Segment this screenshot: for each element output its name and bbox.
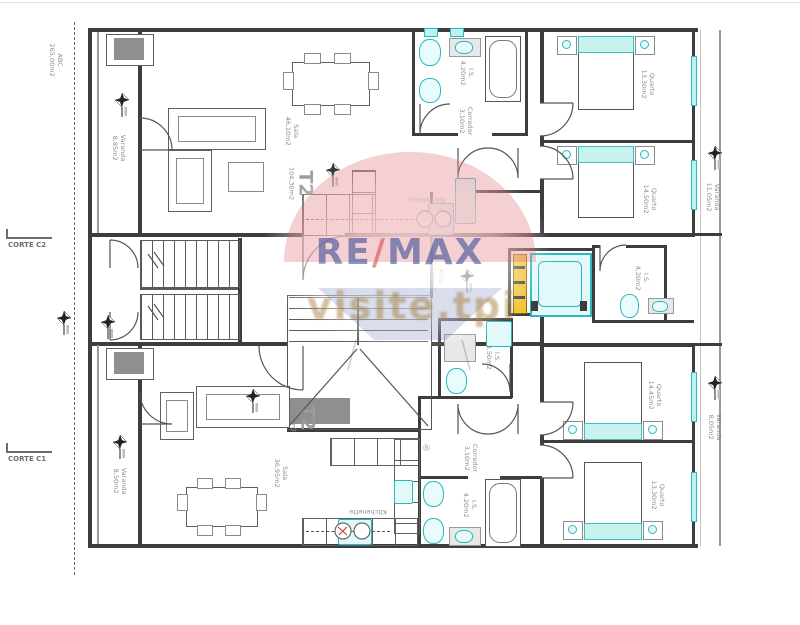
- lamp-icon: [568, 525, 577, 534]
- wall: [88, 28, 92, 548]
- page-edge-line: [0, 2, 800, 3]
- chair: [304, 53, 321, 64]
- corte-c1-tick: [6, 443, 8, 452]
- wall: [592, 320, 694, 323]
- wall: [544, 140, 692, 143]
- corte-c2-label: CORTE C2: [8, 241, 46, 249]
- wall: [544, 440, 692, 443]
- wall: [88, 342, 287, 346]
- chair: [197, 525, 213, 536]
- counter-dashed-edge: [306, 219, 418, 220]
- window: [691, 56, 697, 106]
- lamp-icon: [648, 425, 657, 434]
- armchair-cushion: [166, 400, 188, 432]
- chair: [283, 72, 294, 90]
- watermark-brand-text: RE/MAX: [290, 232, 510, 273]
- lamp-icon: [640, 150, 649, 159]
- kitchen-tall-cabinet: [352, 170, 376, 236]
- balcony-railing: [700, 30, 701, 546]
- label-varanda-bottom-left: Varanda 8,50m2: [112, 457, 128, 505]
- wall: [345, 233, 695, 237]
- stair-flight-lower: [140, 294, 240, 340]
- wall: [540, 179, 544, 237]
- toilet-icon: [446, 368, 467, 394]
- sofa-cushion: [178, 116, 256, 142]
- label-kitchenette-bottom: Kitchenette: [344, 508, 392, 516]
- central-stair-divider: [357, 297, 359, 345]
- balcony-divider: [695, 233, 722, 236]
- duct-tick: [513, 281, 525, 284]
- bathtub-inner: [489, 40, 517, 98]
- label-atrio: Átrio 27,05m2: [429, 252, 445, 300]
- bidet-icon: [423, 518, 444, 544]
- label-varanda-top-left: Varanda 8,85m2: [111, 124, 127, 172]
- balcony-railing: [719, 30, 721, 546]
- dining-table: [186, 487, 258, 527]
- wall: [412, 28, 415, 135]
- wall: [418, 476, 468, 479]
- lamp-icon: [562, 40, 571, 49]
- corte-c1-label: CORTE C1: [8, 455, 46, 463]
- wall: [540, 316, 544, 402]
- wall: [88, 233, 302, 237]
- label-varanda-top-right: Varanda 11,05m2: [705, 173, 721, 221]
- washbasin-icon: [455, 530, 473, 543]
- wall: [540, 343, 692, 347]
- kitchen-appliance: [455, 178, 476, 224]
- duct-tick: [513, 266, 525, 269]
- chair: [368, 72, 379, 90]
- chair: [225, 525, 241, 536]
- counter-dashed-edge: [306, 531, 390, 532]
- duct-shaft-yellow: [513, 254, 527, 314]
- wall: [626, 245, 666, 248]
- label-is-bottom: I.S. 4,20m2: [462, 481, 478, 529]
- chair: [225, 478, 241, 489]
- central-stair-treads: [289, 297, 428, 345]
- label-abc-area: ABC 265,00m2: [48, 36, 64, 84]
- window: [424, 28, 438, 37]
- label-quarto1-top: Quarto 13,30m2: [640, 60, 656, 108]
- label-quarto2-bottom: Quarto 13,30m2: [650, 471, 666, 519]
- shower-foot: [580, 301, 587, 311]
- wall: [508, 248, 592, 251]
- wall: [540, 478, 544, 548]
- bed-pillow: [578, 146, 634, 163]
- label-quarto1-bottom: Quarto 14,45m2: [647, 371, 663, 419]
- label-sala-bottom: Sala 36,95m2: [273, 449, 289, 497]
- chair: [304, 104, 321, 115]
- window: [450, 28, 464, 37]
- bed-pillow: [584, 423, 642, 440]
- lamp-icon: [640, 40, 649, 49]
- bed-pillow: [584, 523, 642, 540]
- toilet-icon: [419, 39, 441, 66]
- coffee-table: [228, 162, 264, 192]
- wall: [592, 245, 595, 323]
- bidet-icon: [419, 78, 441, 103]
- lamp-icon: [562, 150, 571, 159]
- kitchen-appliance: [394, 480, 413, 504]
- wall: [508, 248, 511, 316]
- label-is-mid: I.S. 4,20m2: [634, 254, 650, 302]
- chair: [256, 494, 267, 511]
- wall: [492, 133, 528, 136]
- balcony-railing: [97, 345, 99, 544]
- planter-fill: [114, 38, 144, 60]
- sofa-cushion: [206, 394, 280, 420]
- toilet-icon: [423, 481, 444, 507]
- floor-plan: CORTE C2 CORTE C1 ABC 265,00m2 Varanda 8…: [0, 0, 800, 625]
- washbasin-counter: [444, 334, 476, 362]
- boundary-dashed-line: [74, 22, 75, 575]
- dining-table: [292, 62, 370, 106]
- stair-flight-upper: [140, 240, 240, 288]
- planter-fill: [114, 352, 144, 374]
- chair: [177, 494, 188, 511]
- wall: [540, 28, 544, 103]
- window: [691, 160, 697, 210]
- wall: [438, 396, 512, 399]
- label-is-top: I.S. 4,20m2: [459, 49, 475, 97]
- registered-mark: ®: [422, 444, 431, 454]
- label-corredor-bottom: Corredor 3,10m2: [463, 434, 479, 482]
- window: [691, 472, 697, 522]
- label-varanda-bottom-right: Varanda 8,05m2: [707, 403, 723, 451]
- wall: [438, 318, 441, 398]
- lamp-icon: [568, 425, 577, 434]
- kitchen-sink-unit: [338, 519, 372, 545]
- bed-pillow: [578, 36, 634, 53]
- label-kitchenette-top: Kitchenette: [403, 196, 451, 204]
- label-t2-top: T2 104,30m2: [287, 160, 314, 208]
- lamp-icon: [648, 525, 657, 534]
- wall: [412, 133, 458, 136]
- balcony-railing: [97, 32, 99, 233]
- chair: [334, 53, 351, 64]
- label-corredor-top: Corredor 3,10m2: [458, 97, 474, 145]
- shower-foot: [531, 301, 538, 311]
- stair-landing-divider: [140, 288, 238, 290]
- balcony-divider: [695, 343, 722, 346]
- armchair-cushion: [176, 158, 204, 204]
- chair: [334, 104, 351, 115]
- label-t2-bottom: T2 93,75m2: [289, 394, 316, 442]
- washbasin-icon: [652, 301, 668, 312]
- label-sala-top: Sala 46,10m2: [284, 107, 300, 155]
- corte-c1-line: [6, 451, 52, 453]
- label-quarto2-top: Quarto 14,50m2: [642, 175, 658, 223]
- kitchen-sink-unit: [428, 203, 454, 235]
- wall: [88, 28, 698, 32]
- duct-tick: [513, 296, 525, 299]
- window: [691, 372, 697, 422]
- wall: [525, 28, 528, 135]
- shower-tray: [538, 261, 582, 307]
- corte-c2-line: [6, 237, 52, 239]
- corte-c2-tick: [6, 229, 8, 238]
- bathtub-inner: [489, 483, 517, 543]
- label-is-small-bottom: I.S. 3,50m2: [485, 333, 501, 381]
- chair: [197, 478, 213, 489]
